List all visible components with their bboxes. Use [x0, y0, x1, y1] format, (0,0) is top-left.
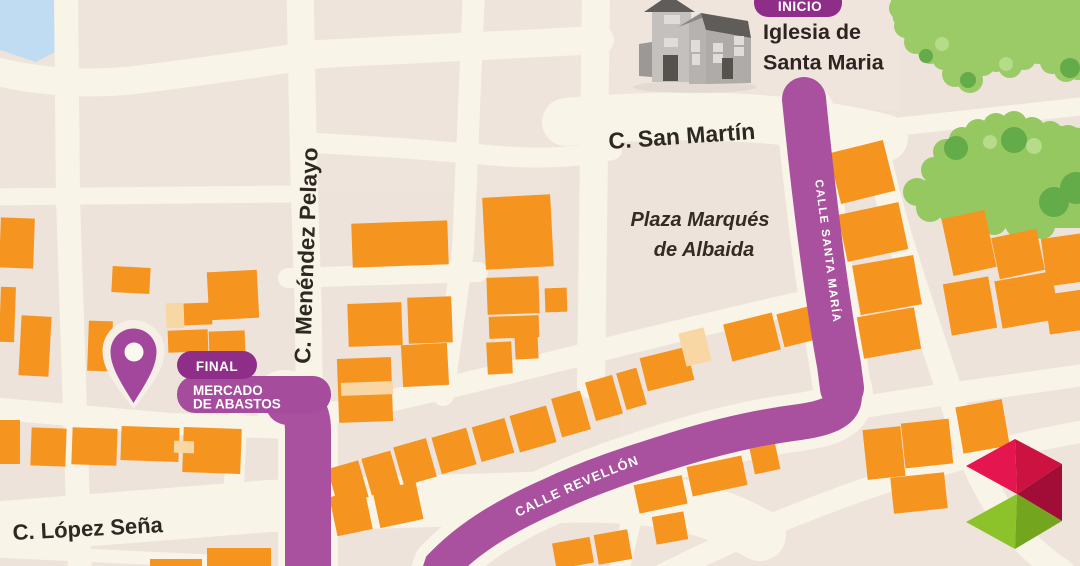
- svg-text:de Albaida: de Albaida: [654, 239, 754, 261]
- svg-text:Iglesia de: Iglesia de: [763, 20, 861, 44]
- svg-text:Plaza Marqués: Plaza Marqués: [631, 209, 770, 231]
- svg-text:Santa Maria: Santa Maria: [763, 51, 885, 75]
- svg-text:INICIO: INICIO: [778, 0, 822, 14]
- svg-text:DE ABASTOS: DE ABASTOS: [193, 397, 281, 412]
- svg-text:FINAL: FINAL: [196, 359, 238, 374]
